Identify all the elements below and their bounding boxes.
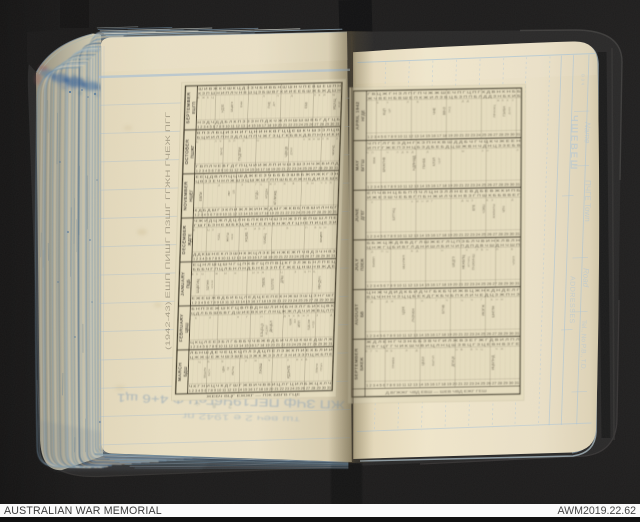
svg-text:AWM2019.22.62: AWM2019.22.62 bbox=[557, 505, 636, 517]
svg-text:AUSTRALIAN WAR MEMORIAL: AUSTRALIAN WAR MEMORIAL bbox=[4, 505, 162, 517]
